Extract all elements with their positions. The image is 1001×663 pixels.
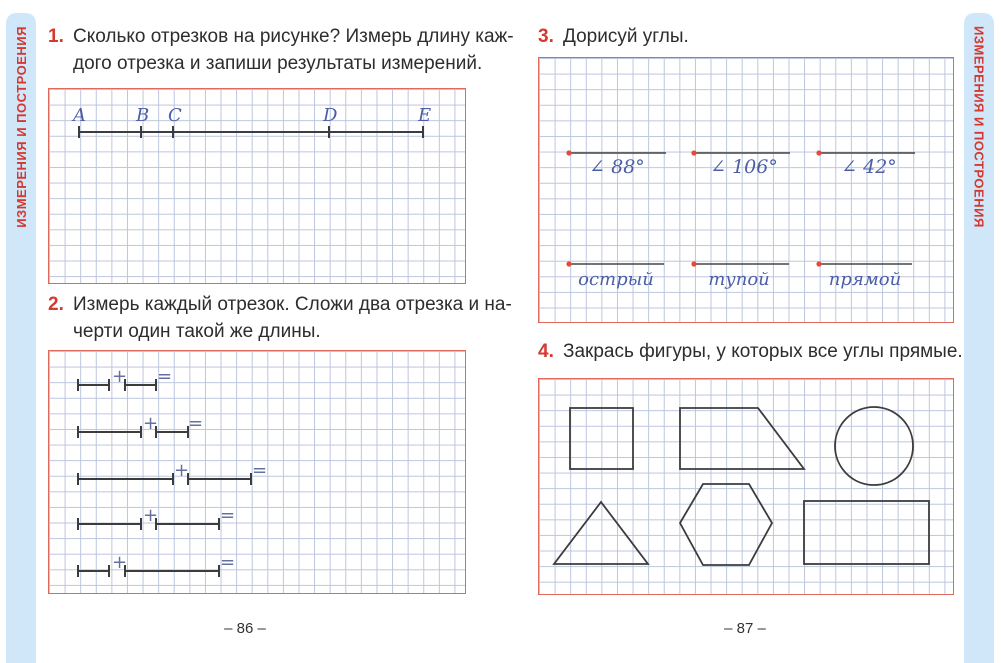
task-3-number: 3. [538,23,554,50]
row5-segment-a [78,565,109,577]
task-1-number: 1. [48,23,64,50]
task-2-line1: Измерь каждый отрезок. Сложи два отрезка… [73,291,512,318]
workbook-spread: ИЗМЕРЕНИЯ И ПОСТРОЕНИЯ ИЗМЕРЕНИЯ И ПОСТР… [0,0,1001,663]
task-4-number: 4. [538,338,554,365]
task-3-text: Дорисуй углы. [563,23,689,50]
left-margin-strip: ИЗМЕРЕНИЯ И ПОСТРОЕНИЯ [6,13,36,663]
triangle-shape [554,502,648,564]
angle-label-42: ∠ 42° [841,156,897,178]
row1-segment-b [125,379,156,391]
segment-sums-diagram: + = + = + = + = + = [49,351,467,595]
angle-vertex-dot-1 [566,150,571,155]
circle-shape [835,407,913,485]
task-1-line2: дого отрезка и запиши результаты измерен… [73,50,514,77]
angle-word-obtuse: тупой [708,269,770,290]
row2-equals-sign: = [188,413,203,434]
angle-label-106: ∠ 106° [710,156,778,178]
row5-plus-sign: + [112,552,127,573]
task-2-line2: черти один такой же длины. [73,318,512,345]
task-1-line1: Сколько отрезков на рисунке? Измерь длин… [73,23,514,50]
task-1-grid-box: A B C D E [48,88,466,284]
hexagon-shape [680,484,772,565]
row5-segment-b [125,565,219,577]
angle-label-88: ∠ 88° [589,156,645,178]
left-margin-label: ИЗМЕРЕНИЯ И ПОСТРОЕНИЯ [14,26,29,228]
segment-diagram: A B C D E [49,89,467,285]
point-label-e: E [417,105,431,126]
square-shape [570,408,633,469]
page-number-left: – 86 – [185,620,305,637]
row1-plus-sign: + [112,366,127,387]
trapezoid-shape [680,408,804,469]
task-3-grid-box: ∠ 88° ∠ 106° ∠ 42° острый тупой прямой [538,57,954,323]
angle-word-right: прямой [829,269,901,290]
row2-segment-b [156,426,188,438]
angles-diagram: ∠ 88° ∠ 106° ∠ 42° острый тупой прямой [539,58,955,324]
row3-equals-sign: = [252,460,267,481]
task-4-grid-box [538,378,954,595]
right-margin-strip: ИЗМЕРЕНИЯ И ПОСТРОЕНИЯ [964,13,994,663]
task-2-grid-box: + = + = + = + = + = [48,350,466,594]
angle-vertex-dot-2 [691,150,696,155]
row2-segment-a [78,426,141,438]
row2-plus-sign: + [143,413,158,434]
angle-vertex-dot-4 [566,261,571,266]
row3-segment-b [188,473,251,485]
task-2: 2. Измерь каждый отрезок. Сложи два отре… [48,291,512,345]
point-label-b: B [135,105,149,126]
row5-equals-sign: = [220,552,235,573]
point-label-a: A [71,105,86,126]
row3-segment-a [78,473,173,485]
angle-word-acute: острый [578,269,654,290]
point-label-c: C [168,105,182,126]
right-margin-label: ИЗМЕРЕНИЯ И ПОСТРОЕНИЯ [972,26,987,228]
task-4-text: Закрась фигуры, у которых все углы прямы… [563,338,963,365]
figures-diagram [539,379,955,596]
page-number-right: – 87 – [685,620,805,637]
segment-line-with-ticks [79,126,423,138]
task-2-number: 2. [48,291,64,318]
row4-equals-sign: = [220,505,235,526]
row4-segment-b [156,518,219,530]
angle-vertex-dot-5 [691,261,696,266]
rectangle-shape [804,501,929,564]
angle-vertex-dot-3 [816,150,821,155]
row3-plus-sign: + [174,460,189,481]
task-1: 1. Сколько отрезков на рисунке? Измерь д… [48,23,514,77]
point-label-d: D [322,105,338,126]
row1-equals-sign: = [157,366,172,387]
row4-plus-sign: + [143,505,158,526]
row1-segment-a [78,379,109,391]
angle-vertex-dot-6 [816,261,821,266]
row4-segment-a [78,518,141,530]
task-3: 3. Дорисуй углы. [538,23,689,50]
task-4: 4. Закрась фигуры, у которых все углы пр… [538,338,963,365]
